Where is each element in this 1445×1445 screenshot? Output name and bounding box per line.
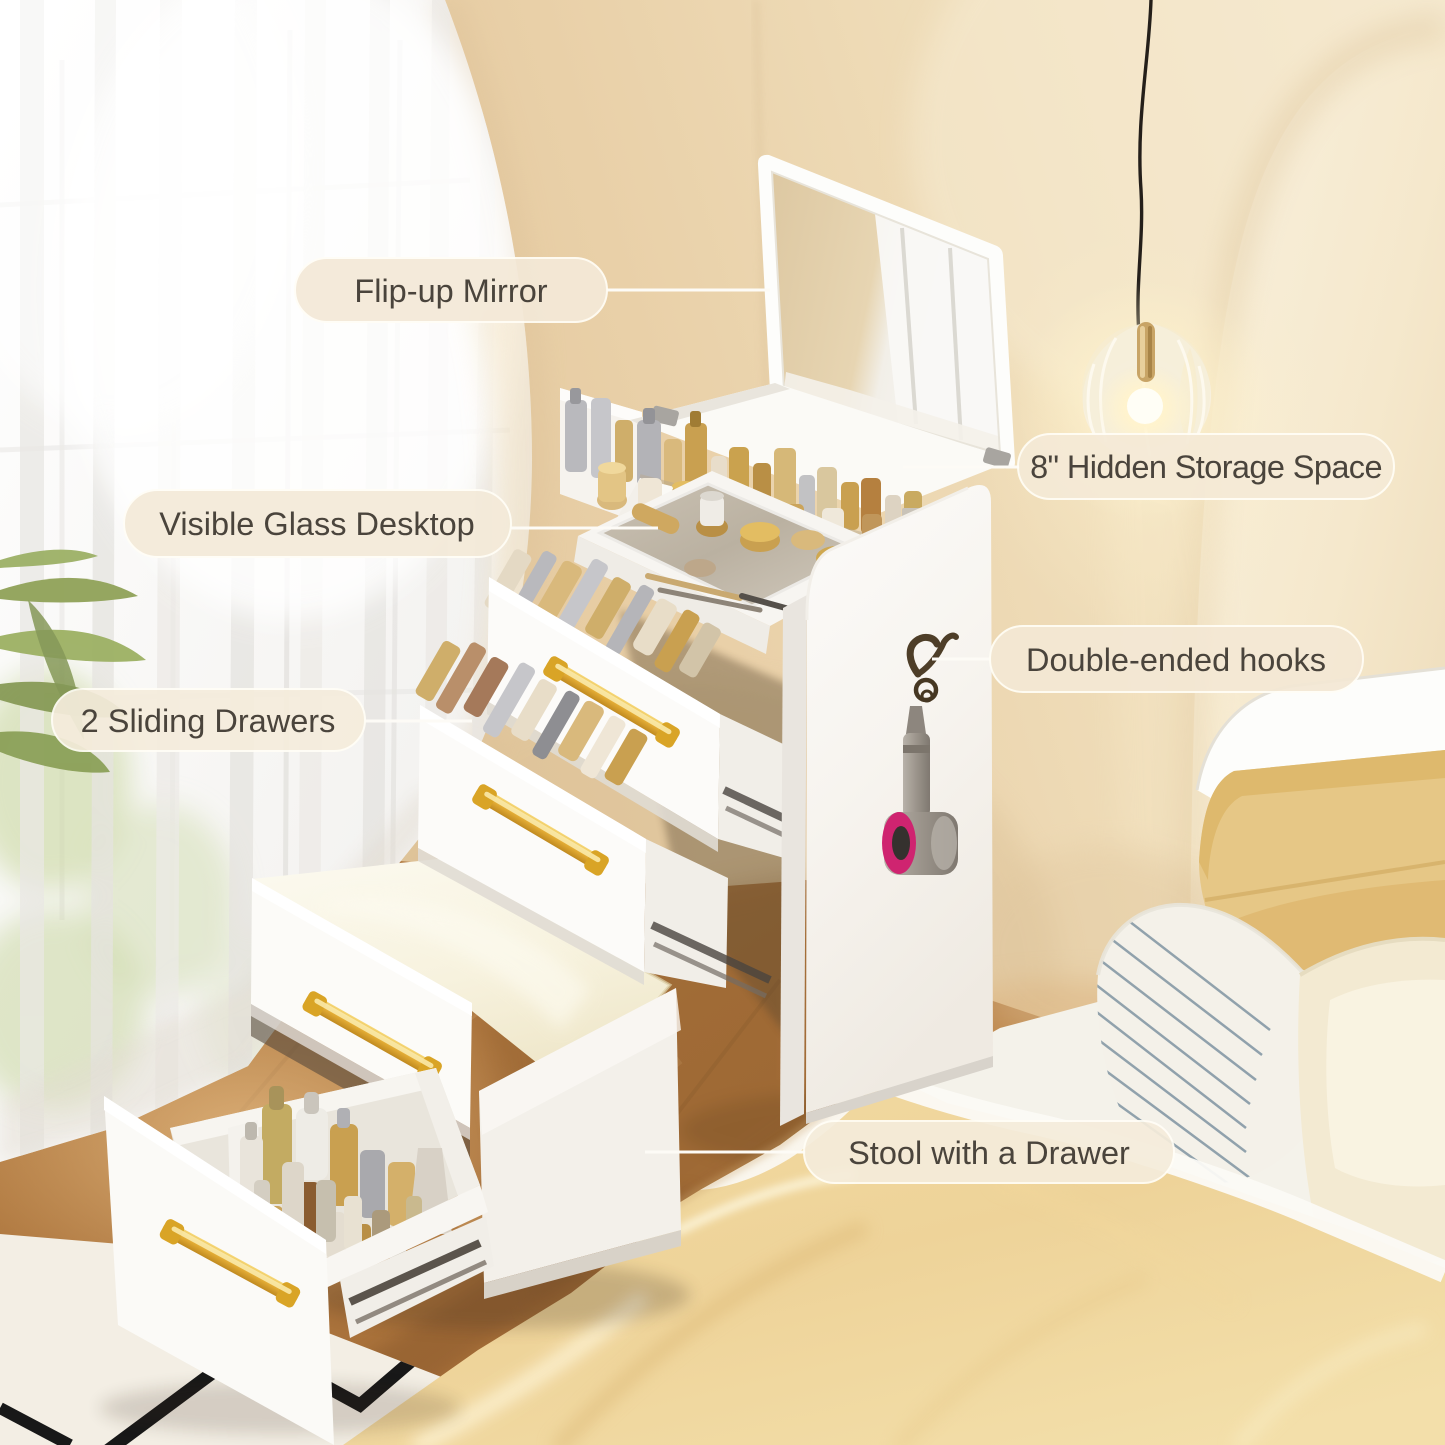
svg-text:Stool with a Drawer: Stool with a Drawer [848, 1135, 1130, 1171]
svg-text:Visible Glass Desktop: Visible Glass Desktop [159, 506, 475, 542]
svg-text:8" Hidden Storage Space: 8" Hidden Storage Space [1030, 449, 1382, 485]
svg-text:Double-ended hooks: Double-ended hooks [1026, 642, 1326, 678]
svg-text:Flip-up Mirror: Flip-up Mirror [354, 273, 547, 309]
svg-text:2 Sliding Drawers: 2 Sliding Drawers [81, 703, 336, 739]
